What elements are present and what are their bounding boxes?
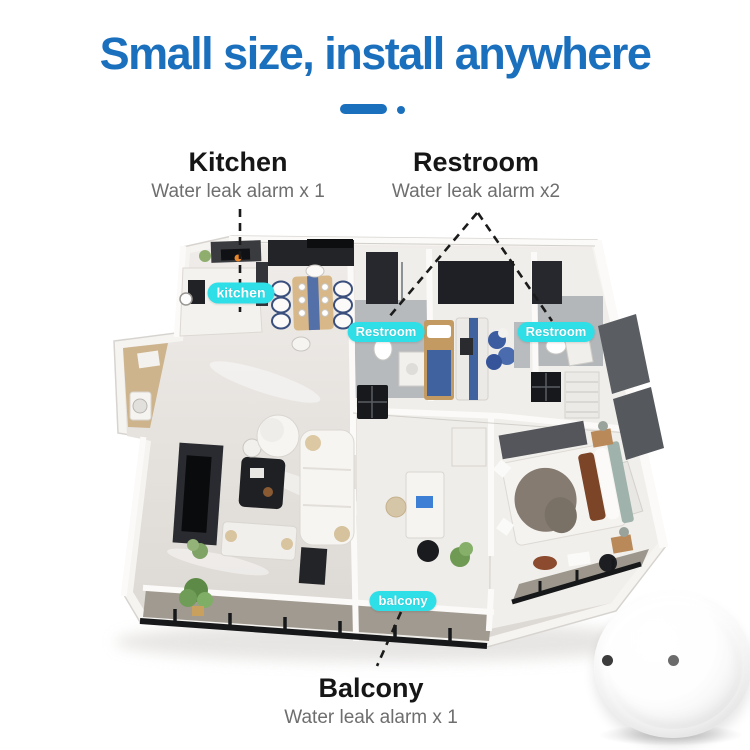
device-probe-dot-right	[668, 655, 679, 666]
floorplan-tag-balcony: balcony	[369, 591, 436, 611]
device-probe-dot-left	[602, 655, 613, 666]
hallway-window	[357, 385, 388, 419]
floorplan-tag-restroom-right: Restroom	[518, 322, 595, 342]
floorplan-tag-restroom-left: Restroom	[348, 322, 425, 342]
floorplan-tag-kitchen: kitchen	[207, 283, 274, 304]
marketing-page: Small size, install anywhere Kitchen Wat…	[0, 0, 750, 750]
water-leak-sensor-device	[594, 592, 750, 738]
